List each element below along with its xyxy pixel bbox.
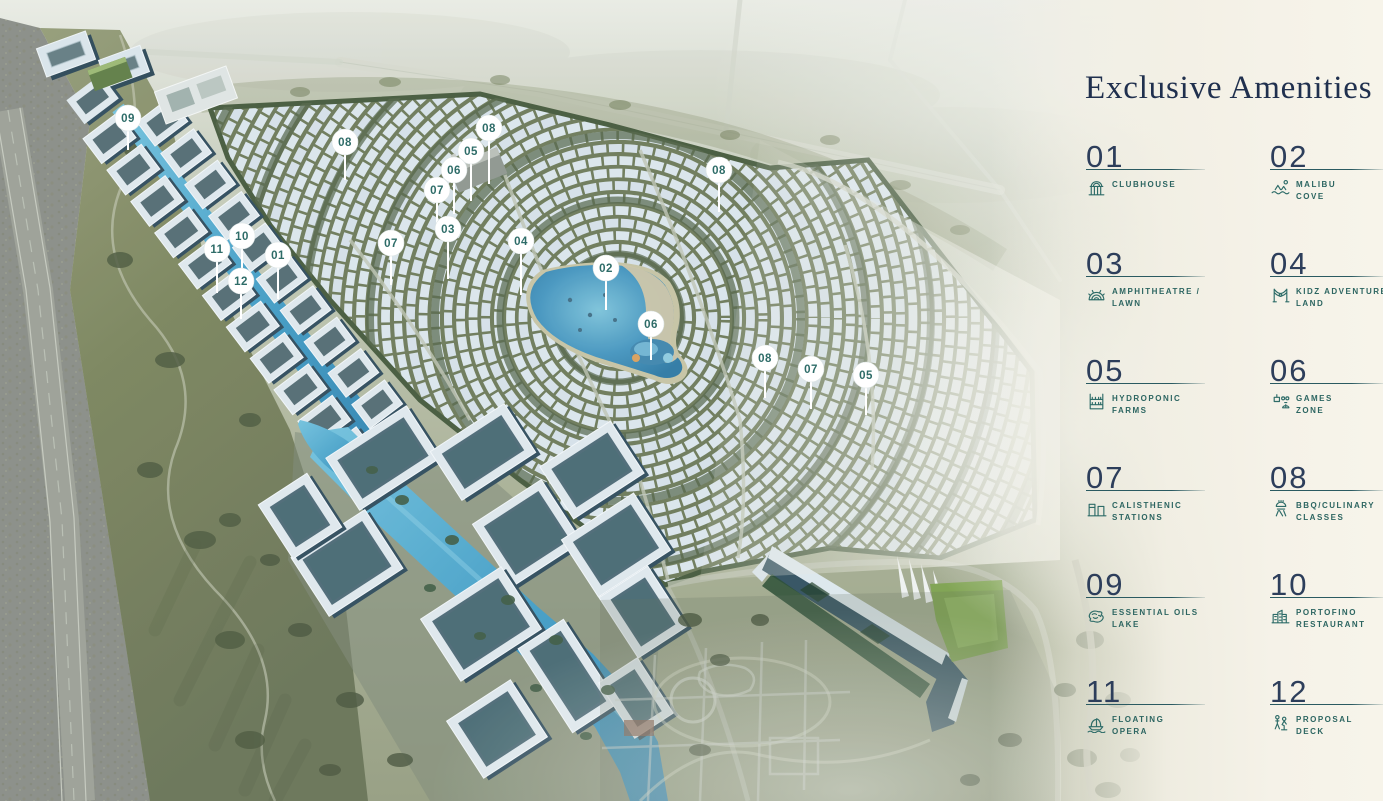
svg-text:07: 07 [804,364,818,376]
svg-text:07: 07 [384,238,398,250]
svg-text:06: 06 [644,319,658,331]
svg-text:03: 03 [441,224,455,236]
svg-text:04: 04 [514,236,528,248]
svg-text:08: 08 [482,123,496,135]
svg-text:11: 11 [210,244,223,256]
svg-text:01: 01 [271,250,285,262]
svg-text:09: 09 [121,113,135,125]
svg-text:06: 06 [447,165,461,177]
svg-text:07: 07 [430,185,444,197]
svg-text:08: 08 [338,137,352,149]
svg-text:08: 08 [712,165,726,177]
svg-text:02: 02 [599,263,613,275]
svg-text:10: 10 [235,231,249,243]
svg-text:12: 12 [234,276,248,288]
svg-text:08: 08 [758,353,772,365]
svg-text:05: 05 [859,370,873,382]
svg-text:05: 05 [464,146,478,158]
